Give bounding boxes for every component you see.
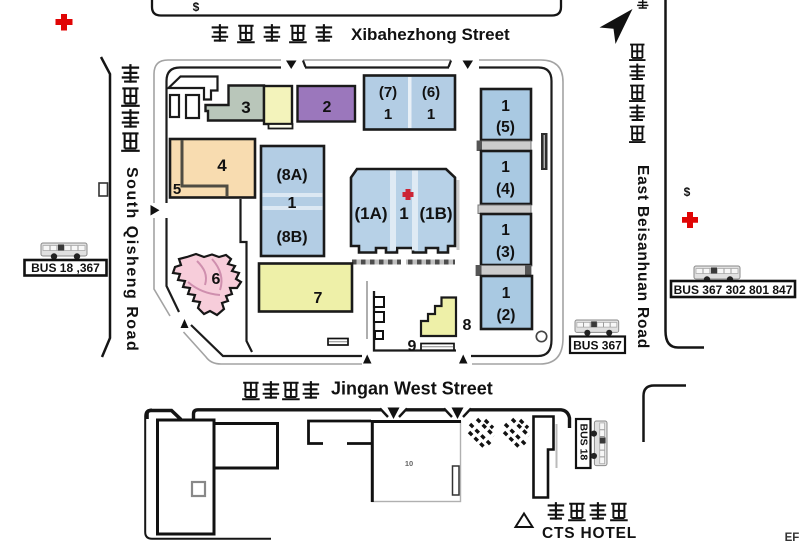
svg-text:(1B): (1B) <box>419 204 452 223</box>
svg-text:1: 1 <box>399 204 408 223</box>
svg-text:(8B): (8B) <box>276 229 307 246</box>
svg-text:$: $ <box>684 185 691 199</box>
svg-text:(7): (7) <box>379 84 397 101</box>
svg-text:(1A): (1A) <box>354 204 387 223</box>
svg-text:CTS HOTEL: CTS HOTEL <box>542 525 637 542</box>
svg-text:EF: EF <box>785 532 800 544</box>
svg-text:7: 7 <box>314 290 323 307</box>
svg-text:(3): (3) <box>496 244 515 261</box>
svg-text:2: 2 <box>323 99 332 116</box>
svg-text:8: 8 <box>463 317 472 334</box>
svg-text:9: 9 <box>408 338 417 355</box>
svg-text:(6): (6) <box>422 84 440 101</box>
svg-text:Xibahezhong Street: Xibahezhong Street <box>351 25 510 44</box>
svg-text:South Qisheng Road: South Qisheng Road <box>123 167 140 352</box>
svg-text:East Beisanhuan Road: East Beisanhuan Road <box>634 165 651 349</box>
svg-text:5: 5 <box>173 181 181 198</box>
svg-text:1: 1 <box>501 222 510 239</box>
svg-text:1: 1 <box>288 195 297 212</box>
svg-text:6: 6 <box>212 271 221 288</box>
svg-text:(8A): (8A) <box>276 167 307 184</box>
svg-text:BUS 367 302 801 847: BUS 367 302 801 847 <box>674 283 793 297</box>
svg-text:BUS 367: BUS 367 <box>573 339 622 353</box>
svg-text:1: 1 <box>501 159 510 176</box>
svg-text:$: $ <box>193 0 200 14</box>
svg-text:(4): (4) <box>496 181 515 198</box>
svg-text:1: 1 <box>384 106 392 123</box>
svg-text:1: 1 <box>502 285 511 302</box>
svg-text:(5): (5) <box>496 119 515 136</box>
svg-text:Jingan West Street: Jingan West Street <box>331 379 493 399</box>
svg-text:BUS 18: BUS 18 <box>578 424 590 461</box>
svg-text:(2): (2) <box>497 307 516 324</box>
svg-text:BUS 18 ,367: BUS 18 ,367 <box>31 261 100 275</box>
svg-text:3: 3 <box>241 98 250 117</box>
svg-text:1: 1 <box>501 98 510 115</box>
svg-text:4: 4 <box>217 156 227 175</box>
svg-text:1: 1 <box>427 106 435 123</box>
svg-text:10: 10 <box>405 459 413 468</box>
